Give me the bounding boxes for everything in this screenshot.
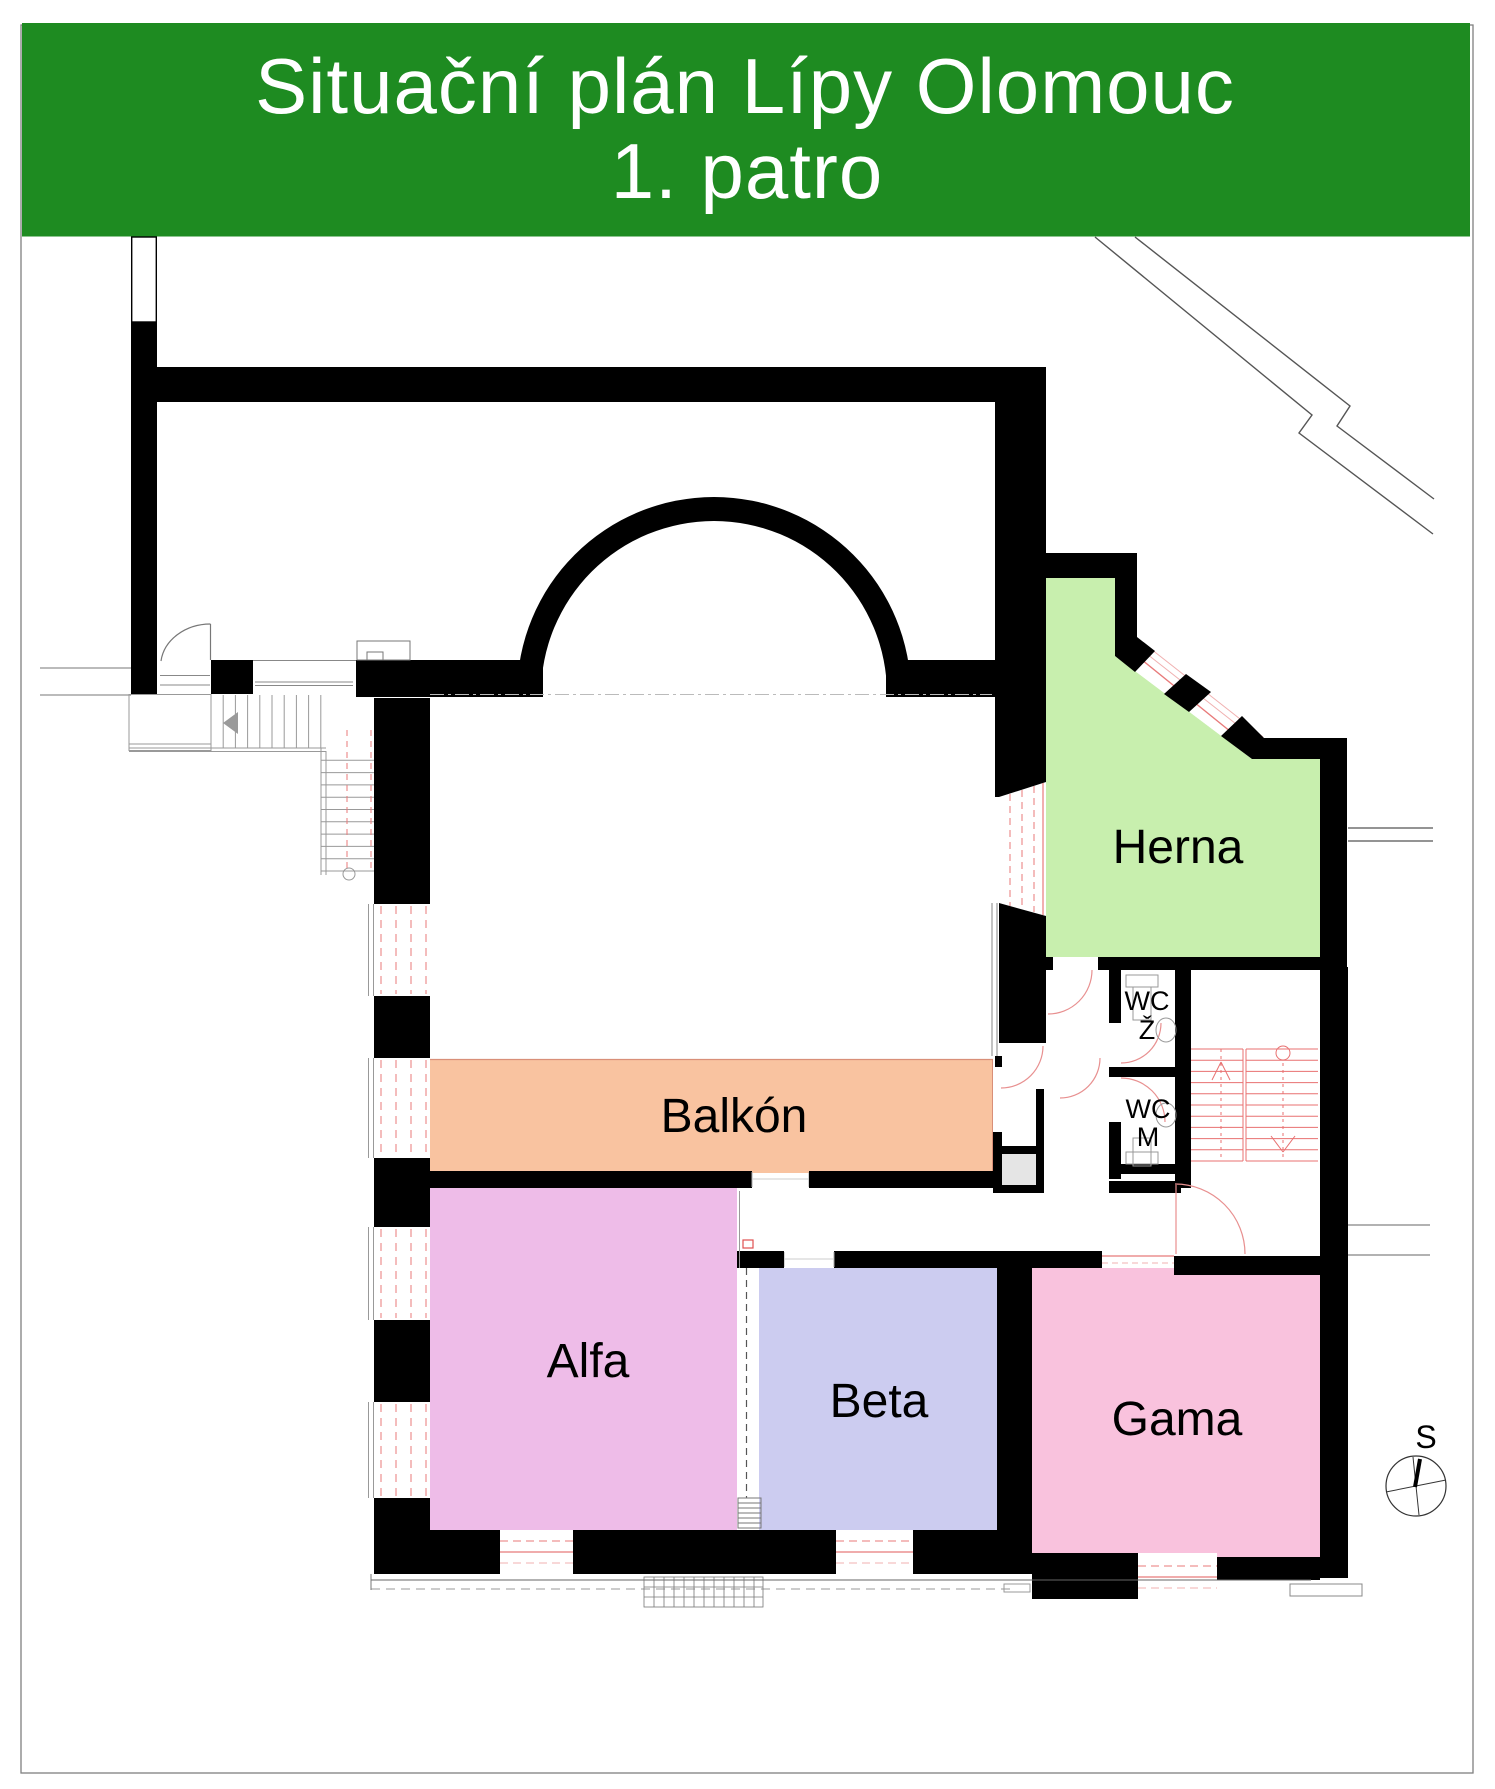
svg-text:1. patro: 1. patro: [611, 127, 884, 215]
svg-text:WC: WC: [1125, 986, 1170, 1016]
svg-text:M: M: [1137, 1122, 1160, 1152]
svg-text:Gama: Gama: [1112, 1393, 1243, 1446]
svg-text:Herna: Herna: [1113, 821, 1244, 874]
svg-text:Balkón: Balkón: [661, 1090, 808, 1143]
svg-text:Situační plán Lípy Olomouc: Situační plán Lípy Olomouc: [255, 42, 1235, 130]
svg-text:Ž: Ž: [1139, 1014, 1156, 1045]
svg-text:Alfa: Alfa: [547, 1335, 630, 1388]
svg-text:S: S: [1415, 1419, 1436, 1455]
svg-text:WC: WC: [1126, 1094, 1171, 1124]
svg-text:Beta: Beta: [830, 1375, 929, 1428]
